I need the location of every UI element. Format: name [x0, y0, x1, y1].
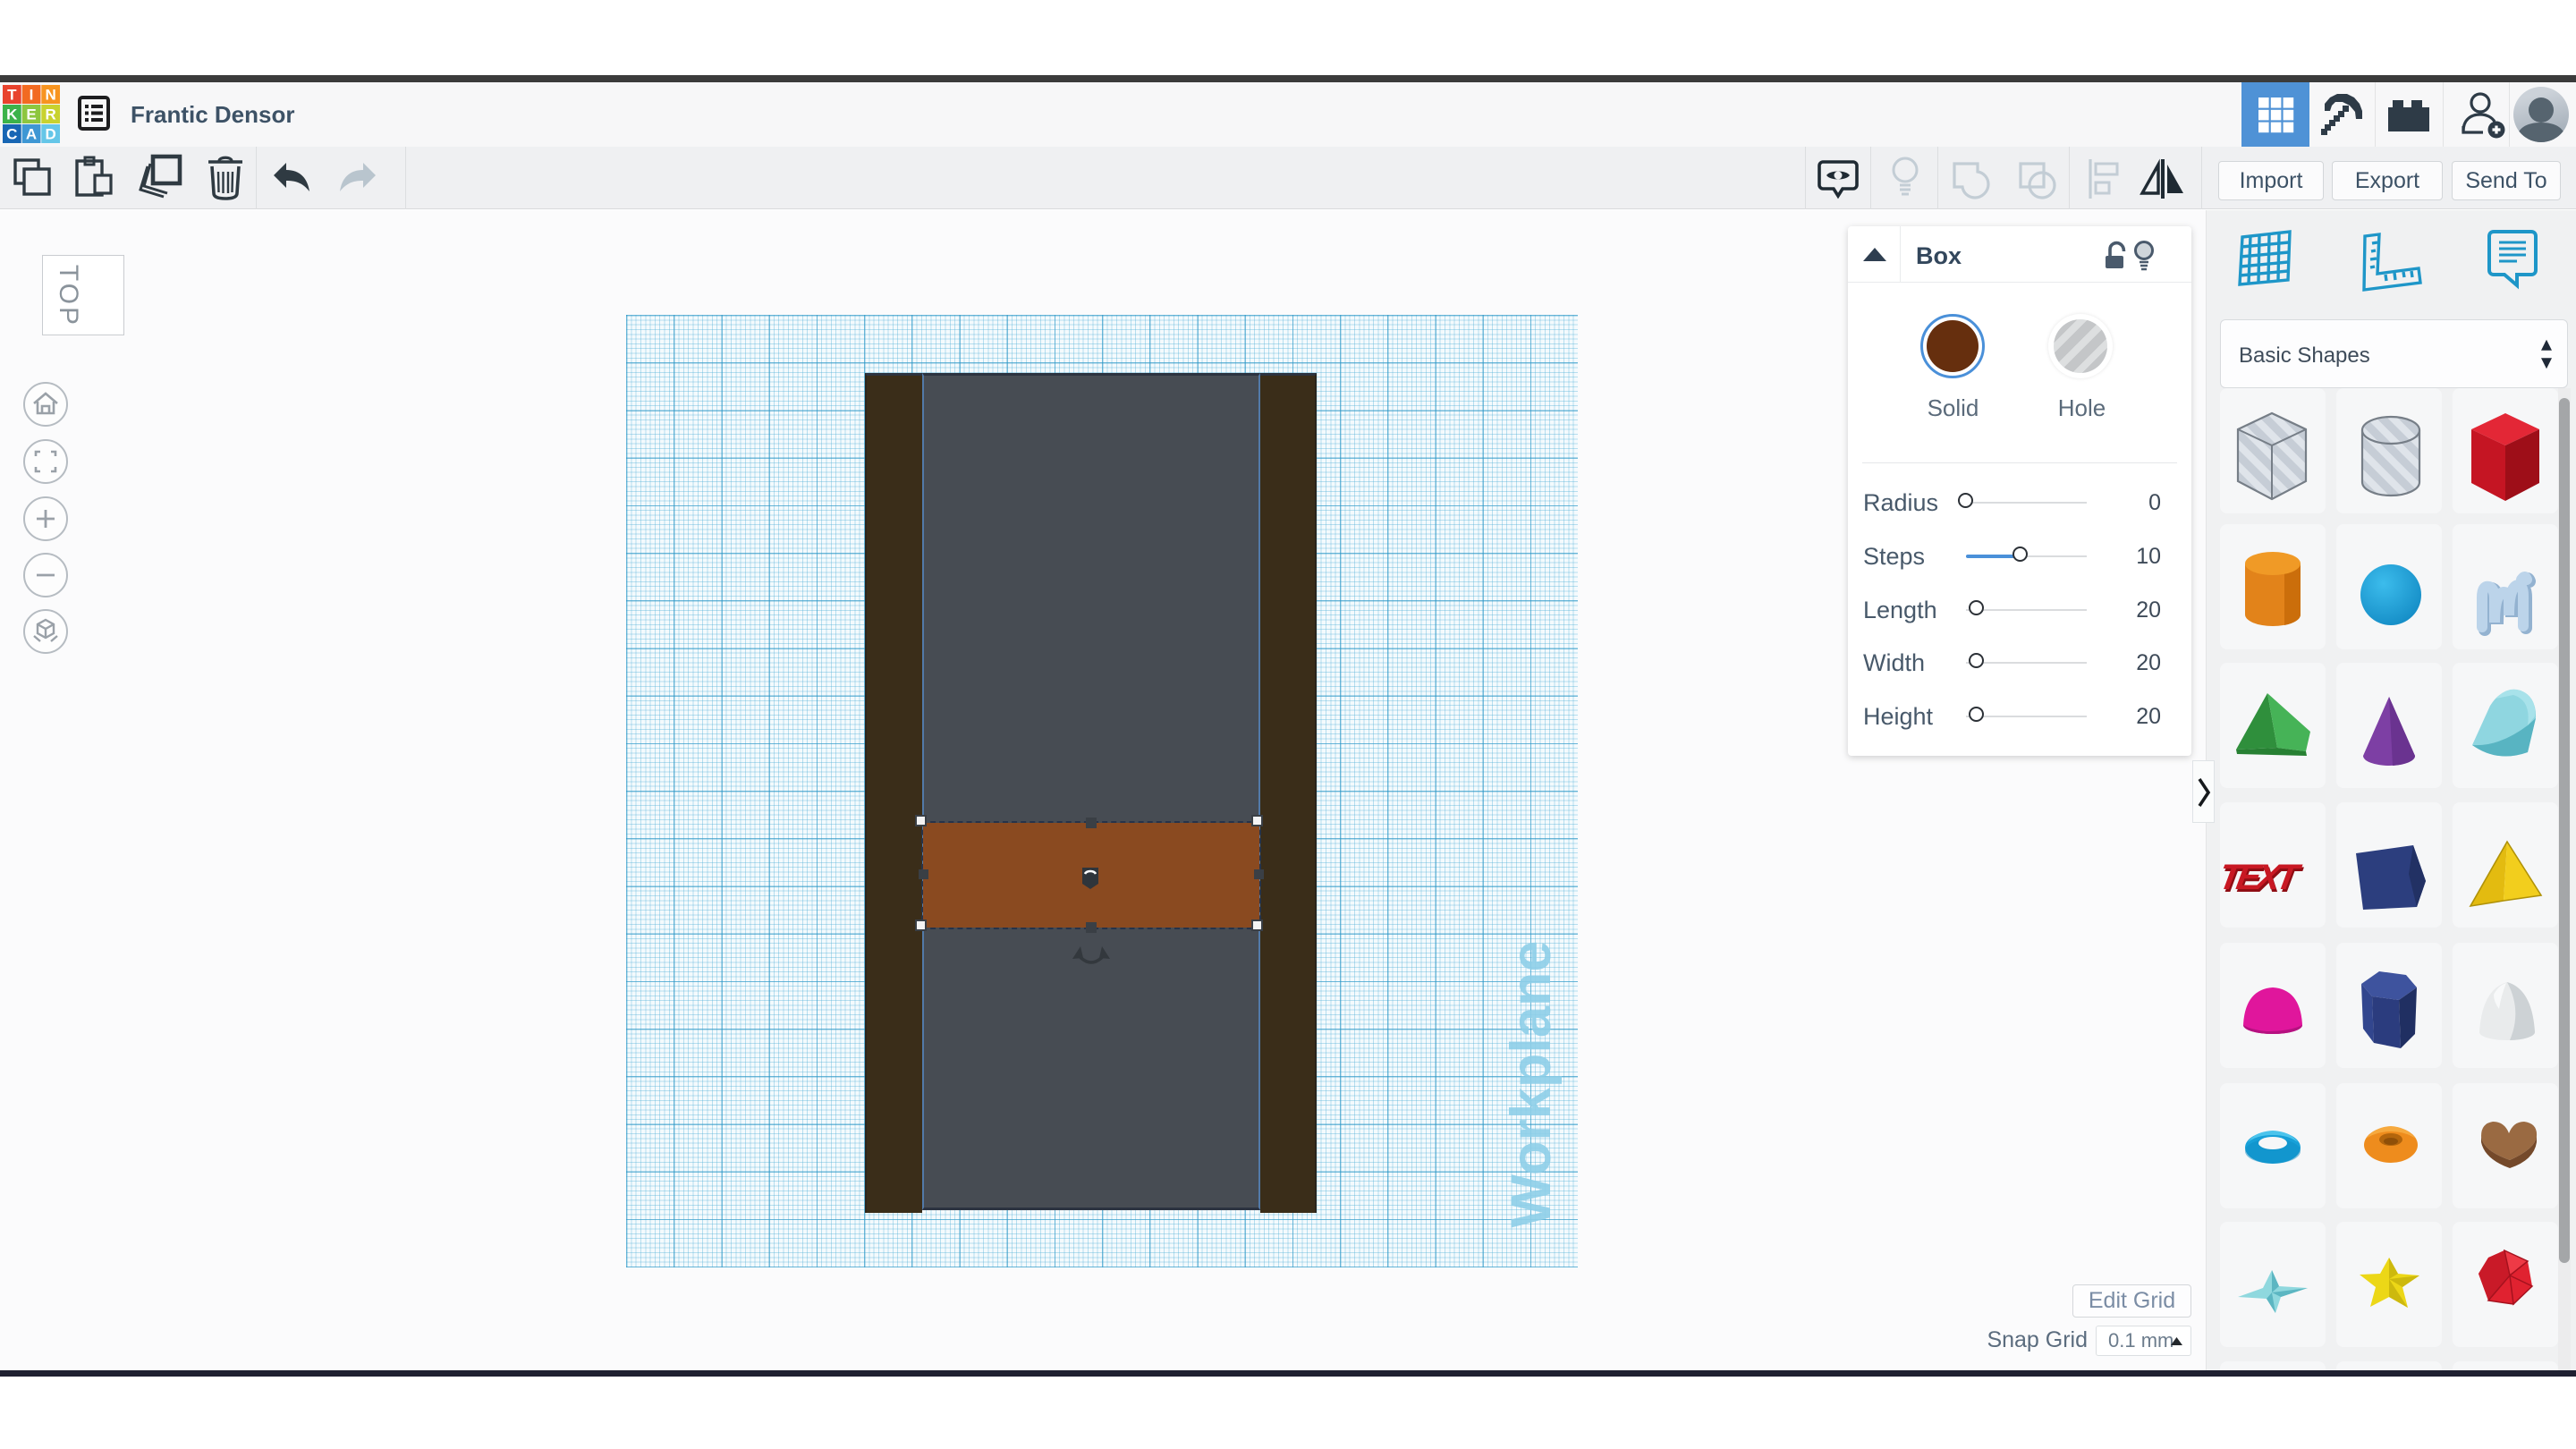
svg-text:R: R	[45, 106, 55, 123]
svg-text:TEXT: TEXT	[2216, 857, 2304, 897]
svg-text:C: C	[6, 126, 17, 143]
svg-text:K: K	[6, 106, 18, 123]
svg-text:D: D	[45, 126, 55, 143]
svg-text:T: T	[7, 87, 17, 104]
svg-text:E: E	[26, 106, 36, 123]
svg-text:I: I	[30, 87, 34, 104]
svg-text:A: A	[26, 126, 37, 143]
svg-text:N: N	[45, 87, 55, 104]
